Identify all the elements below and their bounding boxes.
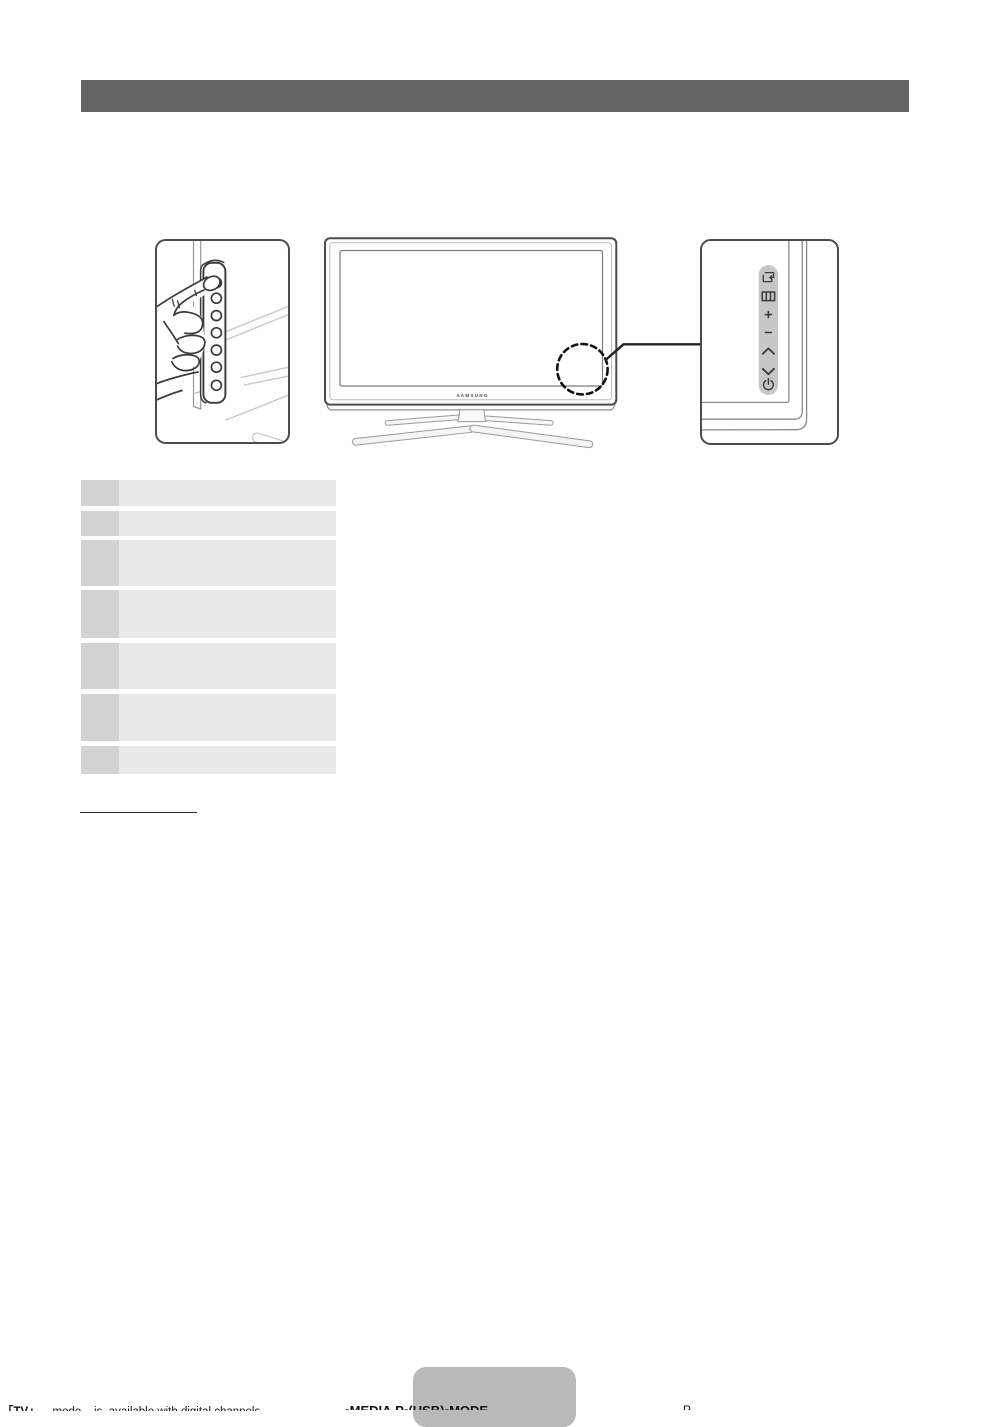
svg-text:SAMSUNG: SAMSUNG — [456, 393, 488, 398]
